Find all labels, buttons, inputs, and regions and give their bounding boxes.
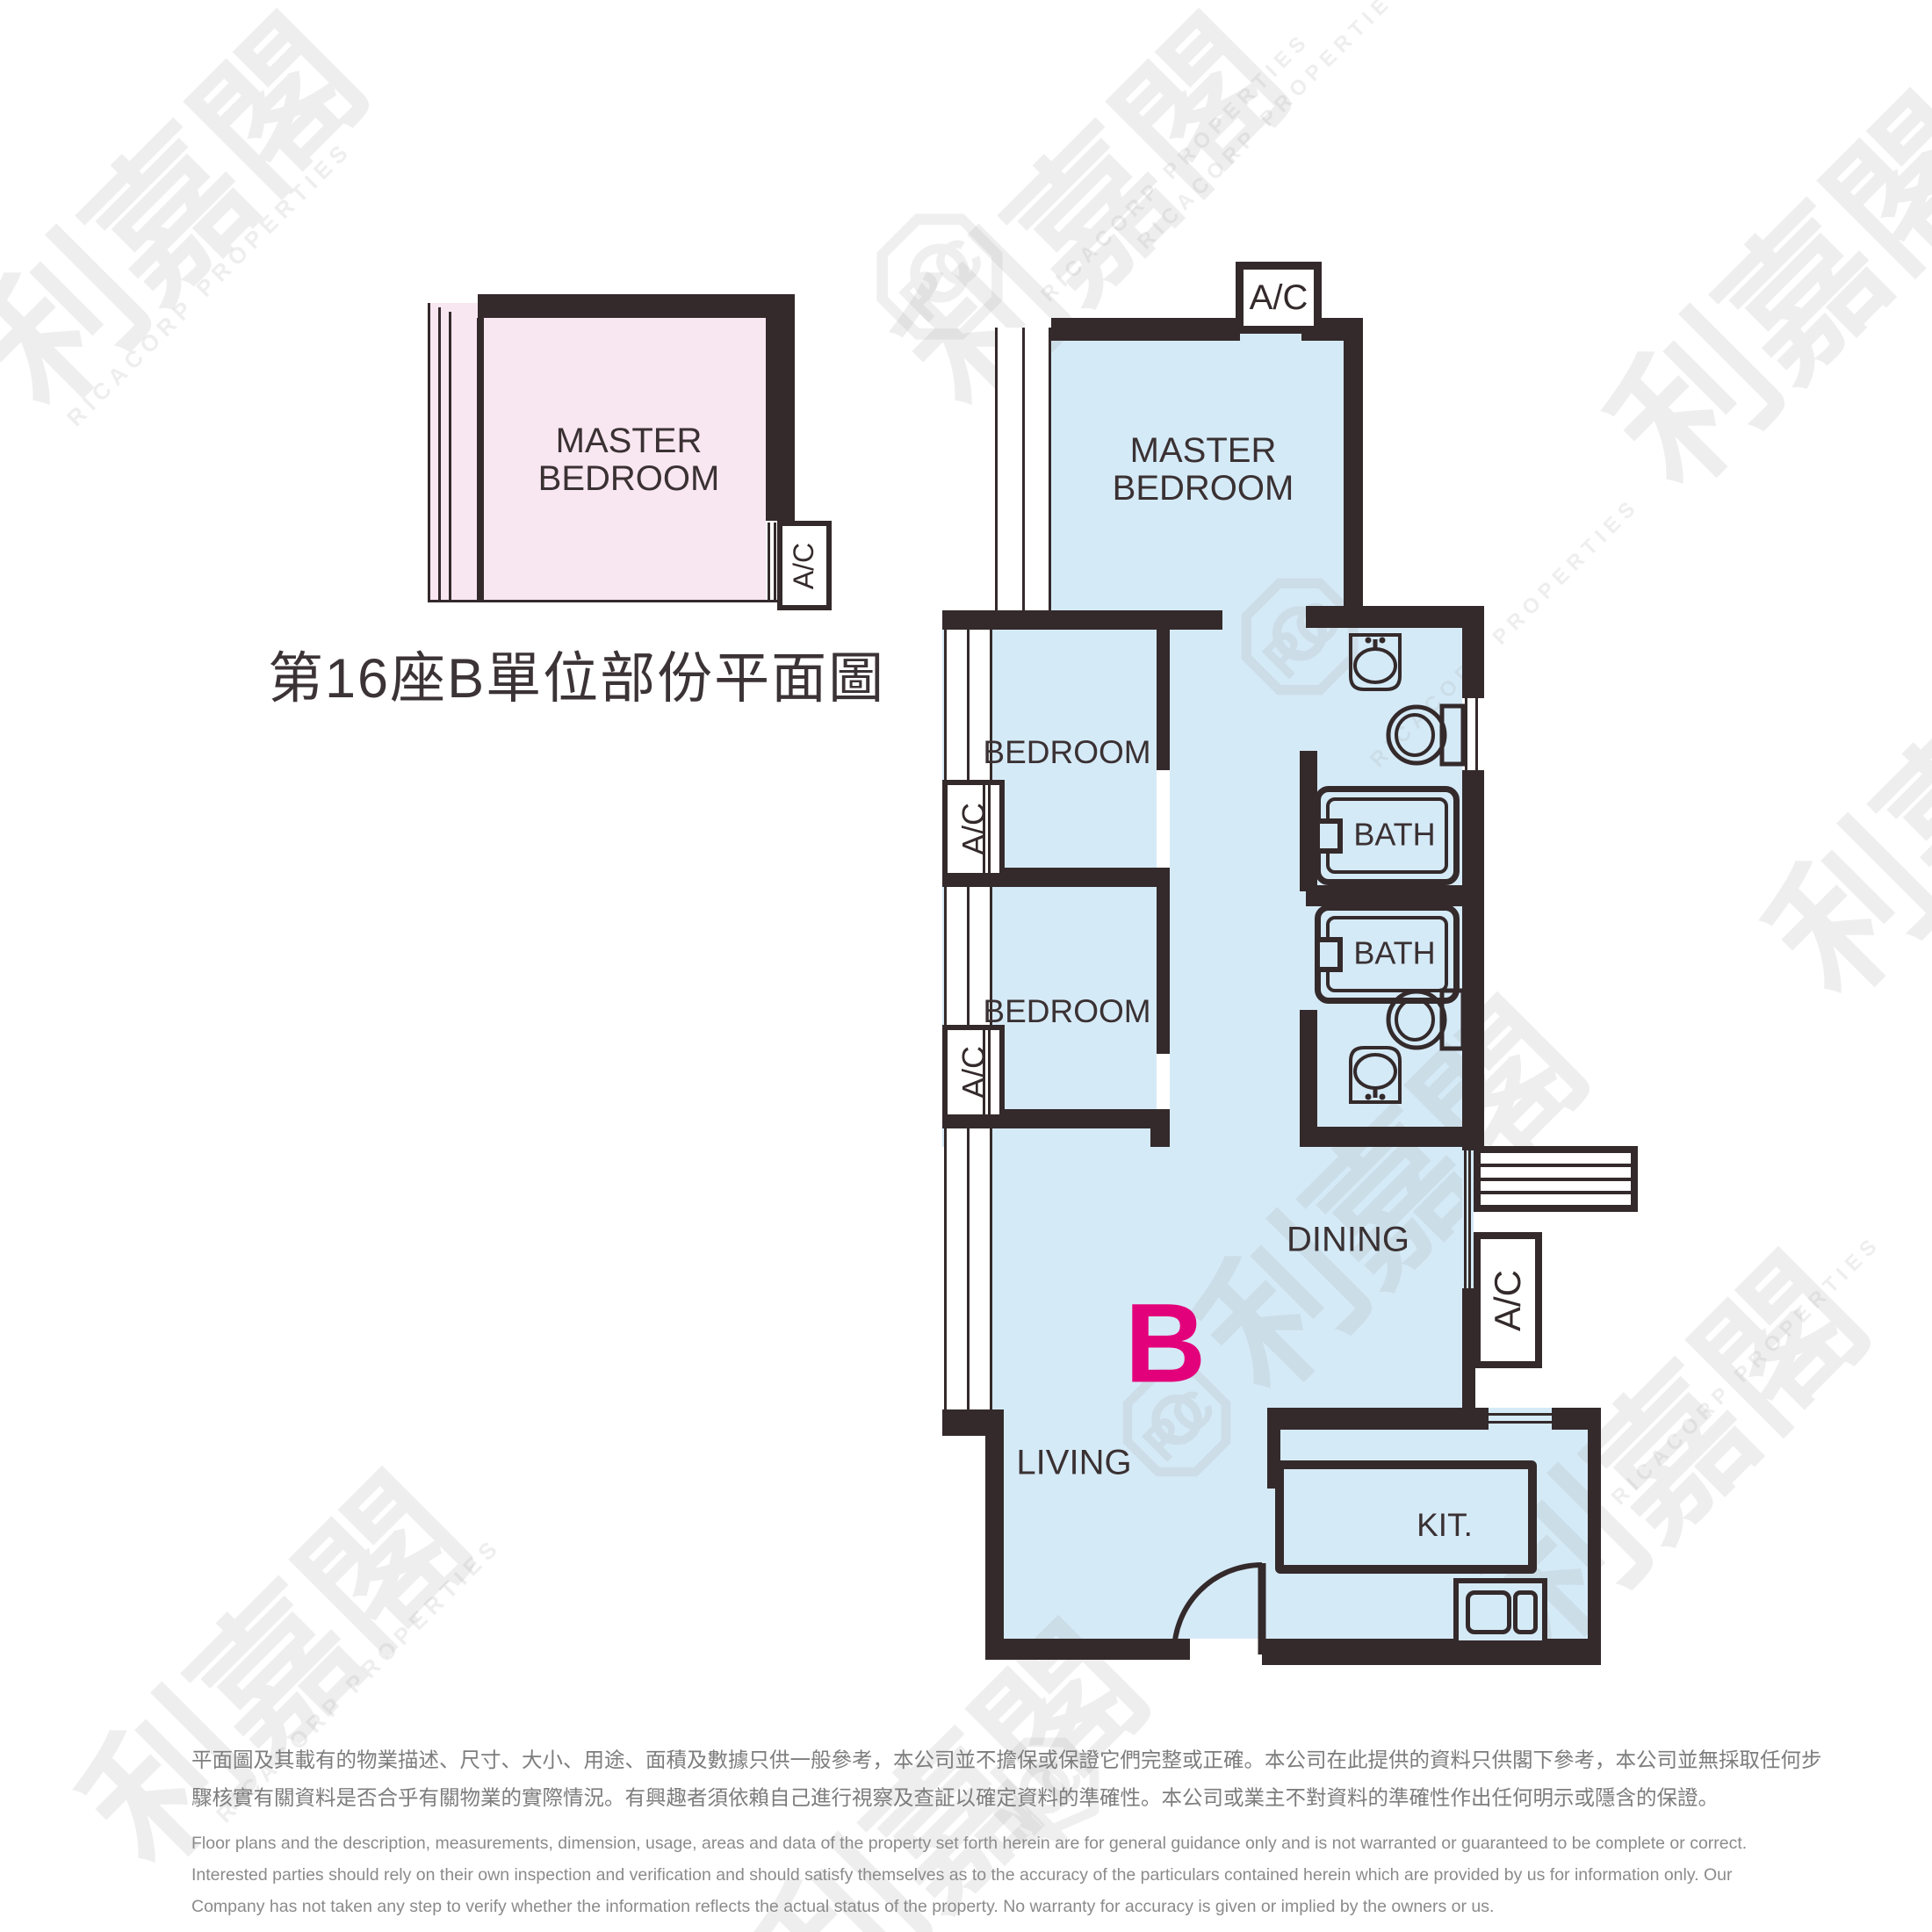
ac-unit-bedroom1: A/C	[942, 780, 1005, 878]
wall-corner-cap	[1150, 1128, 1170, 1147]
bedroom2-label: BEDROOM	[983, 994, 1150, 1029]
master-bedroom-label: MASTER BEDROOM	[1113, 432, 1294, 508]
bedroom1-label: BEDROOM	[983, 735, 1150, 770]
inset-room-label: MASTER BEDROOM	[538, 422, 720, 498]
inset-room-edge-line	[477, 318, 484, 602]
bathtub-faucet	[1315, 818, 1343, 854]
inset-ac-unit: A/C	[777, 521, 832, 610]
watermark-text-cn: 利嘉閣	[0, 0, 404, 447]
appliance-compartment	[1513, 1590, 1538, 1634]
kitchen-bottom-wall	[1262, 1639, 1601, 1665]
inset-window-line	[428, 303, 430, 602]
inset-room-label-line2: BEDROOM	[538, 460, 720, 498]
inset-bottom-line	[428, 600, 795, 602]
disclaimer-en-line2: Interested parties should rely on their …	[191, 1865, 1733, 1885]
window-lines	[1462, 1150, 1474, 1288]
kitchen-label: KIT.	[1417, 1508, 1473, 1543]
disclaimer-zh-line2: 驟核實有關資料是否合乎有關物業的實際情況。有興趣者須依賴自己進行視察及查証以確定…	[191, 1781, 1719, 1811]
bathtub-faucet	[1315, 937, 1343, 972]
logo-letters: RC	[887, 224, 998, 335]
inset-top-wall	[478, 294, 795, 318]
disclaimer-zh-line1: 平面圖及其載有的物業描述、尺寸、大小、用途、面積及數據只供一般參考，本公司並不擔…	[191, 1743, 1822, 1773]
watermark-text-cn: 利嘉閣	[1712, 552, 1932, 1035]
ac-unit-bedroom2: A/C	[942, 1025, 1005, 1120]
ac-unit-top: A/C	[1236, 262, 1322, 334]
sink-fixture	[1346, 631, 1404, 694]
floorplan-page: 利嘉閣 RICACORP PROPERTIES 利嘉閣 RICACORP PRO…	[0, 0, 1932, 1932]
bath-divider-wall	[1306, 885, 1484, 906]
ac-unit-dining: A/C	[1474, 1232, 1542, 1368]
inset-window-line	[438, 307, 441, 602]
disclaimer-en-line3: Company has not taken any step to verify…	[191, 1897, 1494, 1917]
ac-label: A/C	[789, 542, 821, 588]
window-lines	[981, 1030, 993, 1114]
inset-window-line	[449, 312, 451, 602]
dining-label: DINING	[1287, 1221, 1409, 1258]
master-window	[995, 328, 1051, 615]
louvre-lines	[1481, 1153, 1631, 1205]
kitchen-window	[1489, 1408, 1552, 1430]
watermark-text-en: RICACORP PROPERTIES	[1607, 1231, 1886, 1510]
master-label-line1: MASTER	[1113, 432, 1294, 470]
appliance-compartment	[1466, 1590, 1511, 1634]
inset-right-wall	[766, 294, 795, 521]
kitchen-appliance	[1453, 1578, 1547, 1646]
kitchen-counter	[1275, 1460, 1537, 1574]
ac-label: A/C	[1487, 1269, 1529, 1330]
planter-louvre	[1474, 1146, 1638, 1212]
ac-label: A/C	[1250, 278, 1308, 318]
inset-window-line	[774, 523, 776, 600]
living-window	[944, 1128, 992, 1409]
living-left-wall	[985, 1409, 1004, 1660]
inset-window-line	[768, 523, 770, 600]
toilet-fixture	[1384, 987, 1467, 1052]
disclaimer-en-line1: Floor plans and the description, measure…	[191, 1834, 1747, 1854]
master-label-line2: BEDROOM	[1113, 470, 1294, 508]
living-label: LIVING	[1016, 1444, 1131, 1481]
sink-fixture	[1346, 1043, 1404, 1107]
inset-room-label-line1: MASTER	[538, 422, 720, 460]
unit-letter: B	[1125, 1280, 1206, 1409]
watermark-text-en: RICACORP PROPERTIES	[61, 136, 357, 432]
living-bottom-wall	[985, 1639, 1190, 1660]
bath2-label: BATH	[1353, 937, 1435, 971]
watermark-text-en: RICACORP PROPERTIES	[1133, 0, 1412, 255]
window-lines	[1489, 1408, 1552, 1430]
toilet-fixture	[1384, 703, 1467, 768]
bedroom1-right-wall	[1157, 630, 1170, 770]
bath-top-wall	[1306, 606, 1484, 628]
entrance-door	[1168, 1556, 1269, 1657]
watermark-text-cn: 利嘉閣	[1554, 43, 1932, 526]
kitchen-top-wall-left	[1267, 1408, 1489, 1430]
kitchen-right-wall	[1588, 1408, 1601, 1645]
bath-right-wall	[1462, 606, 1484, 1150]
bedroom2-right-wall	[1157, 887, 1170, 1054]
watermark-text-cn: 利嘉閣	[26, 1422, 509, 1905]
master-bottom-wall	[942, 610, 1222, 630]
plan-caption: 第16座B單位部份平面圖	[268, 634, 885, 714]
bath1-label: BATH	[1353, 818, 1435, 853]
master-right-wall	[1344, 318, 1363, 628]
top-wall-left	[1051, 318, 1240, 341]
bath-bottom-wall	[1300, 1127, 1484, 1147]
dining-window	[1462, 1150, 1474, 1288]
window-lines	[981, 785, 993, 873]
